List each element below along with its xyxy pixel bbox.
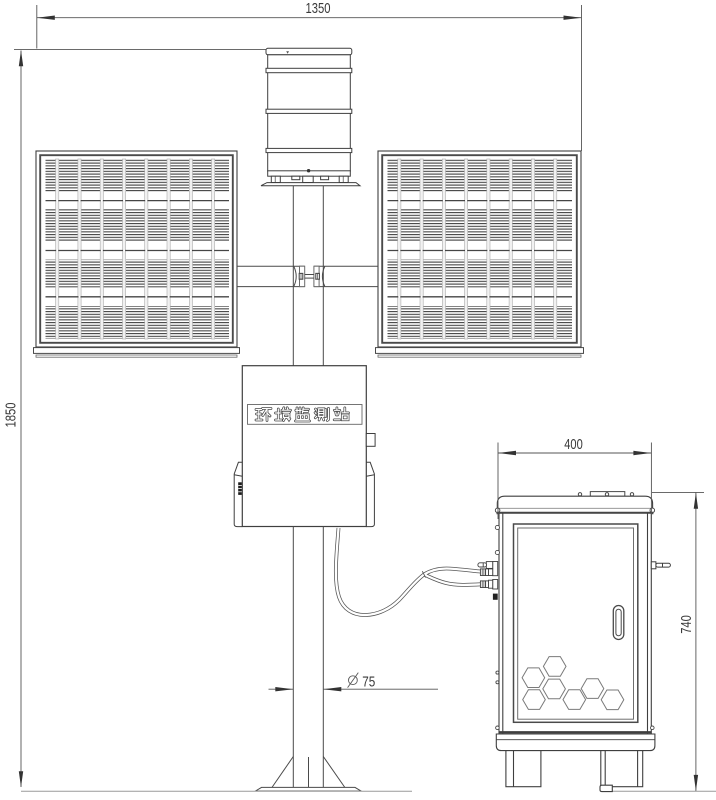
- svg-text:75: 75: [362, 674, 375, 691]
- svg-text:1850: 1850: [3, 403, 20, 428]
- svg-text:400: 400: [564, 436, 583, 453]
- svg-text:740: 740: [678, 615, 695, 634]
- svg-text:1350: 1350: [306, 0, 331, 17]
